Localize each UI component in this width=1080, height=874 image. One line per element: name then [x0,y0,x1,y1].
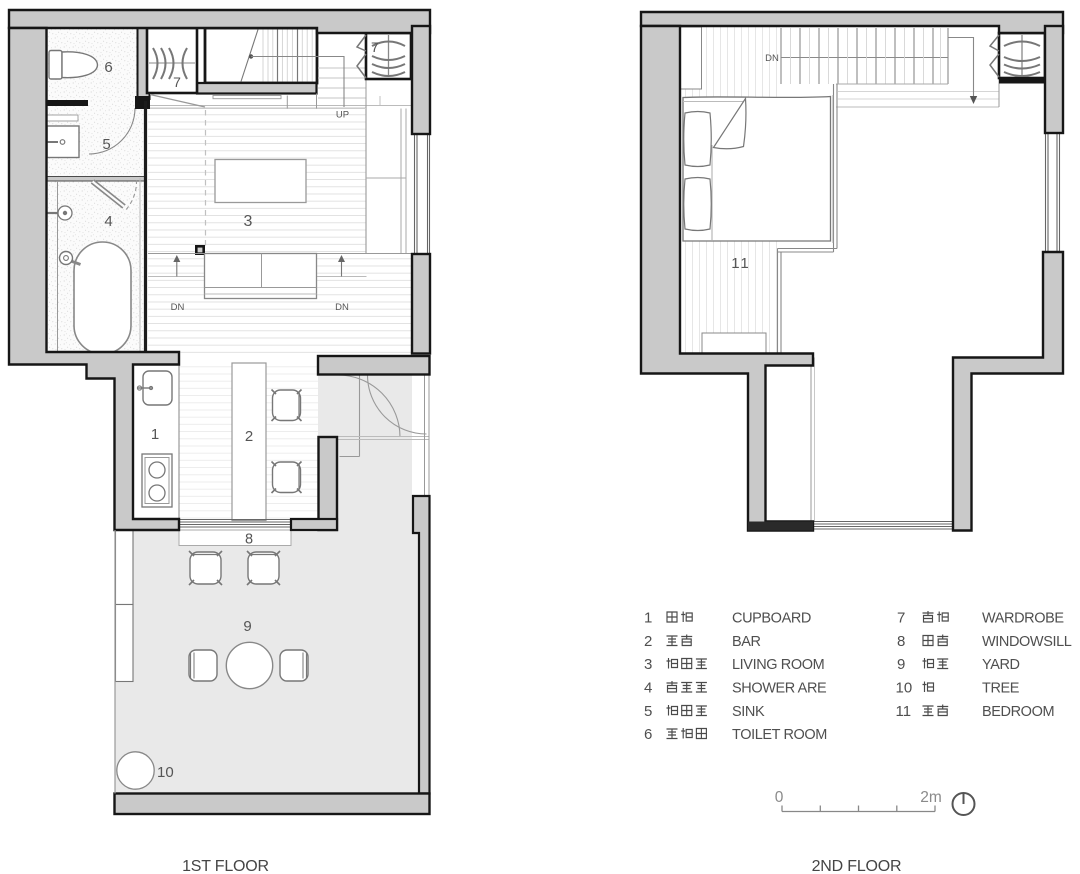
svg-text:TREE: TREE [982,681,1020,697]
svg-text:8: 8 [245,532,253,548]
svg-text:2m: 2m [920,789,942,806]
svg-text:11: 11 [896,703,912,720]
svg-text:5: 5 [102,136,110,153]
svg-text:BEDROOM: BEDROOM [982,704,1054,720]
svg-text:SINK: SINK [732,704,765,720]
svg-text:10: 10 [896,680,913,697]
svg-text:3: 3 [244,213,253,230]
svg-text:10: 10 [157,764,174,781]
svg-text:YARD: YARD [982,657,1020,673]
svg-text:WARDROBE: WARDROBE [982,611,1064,627]
svg-text:WINDOWSILL: WINDOWSILL [982,634,1072,650]
svg-text:3: 3 [644,656,652,673]
svg-text:UP: UP [336,110,349,121]
svg-text:9: 9 [897,656,905,673]
svg-text:DN: DN [765,53,779,64]
svg-text:CUPBOARD: CUPBOARD [732,611,811,627]
svg-text:DN: DN [171,302,185,313]
svg-text:LIVING ROOM: LIVING ROOM [732,657,824,673]
svg-text:7: 7 [897,610,905,627]
svg-text:6: 6 [104,59,112,76]
svg-text:DN: DN [335,302,349,313]
svg-text:0: 0 [775,789,784,806]
svg-text:2: 2 [245,428,253,445]
svg-text:SHOWER ARE: SHOWER ARE [732,681,827,697]
svg-text:1ST FLOOR: 1ST FLOOR [182,858,269,874]
svg-text:BAR: BAR [732,634,761,650]
svg-text:9: 9 [243,618,251,635]
svg-text:TOILET ROOM: TOILET ROOM [732,727,827,743]
svg-text:2ND FLOOR: 2ND FLOOR [812,858,902,874]
svg-text:7: 7 [371,39,379,55]
svg-text:1: 1 [644,610,652,627]
svg-text:2: 2 [644,633,652,650]
svg-text:4: 4 [104,213,112,230]
svg-text:4: 4 [644,680,652,697]
svg-text:7: 7 [173,74,181,90]
svg-text:1: 1 [151,426,159,443]
svg-text:6: 6 [644,726,652,743]
svg-text:11: 11 [731,255,751,272]
svg-text:5: 5 [644,703,652,720]
svg-text:8: 8 [897,633,905,650]
